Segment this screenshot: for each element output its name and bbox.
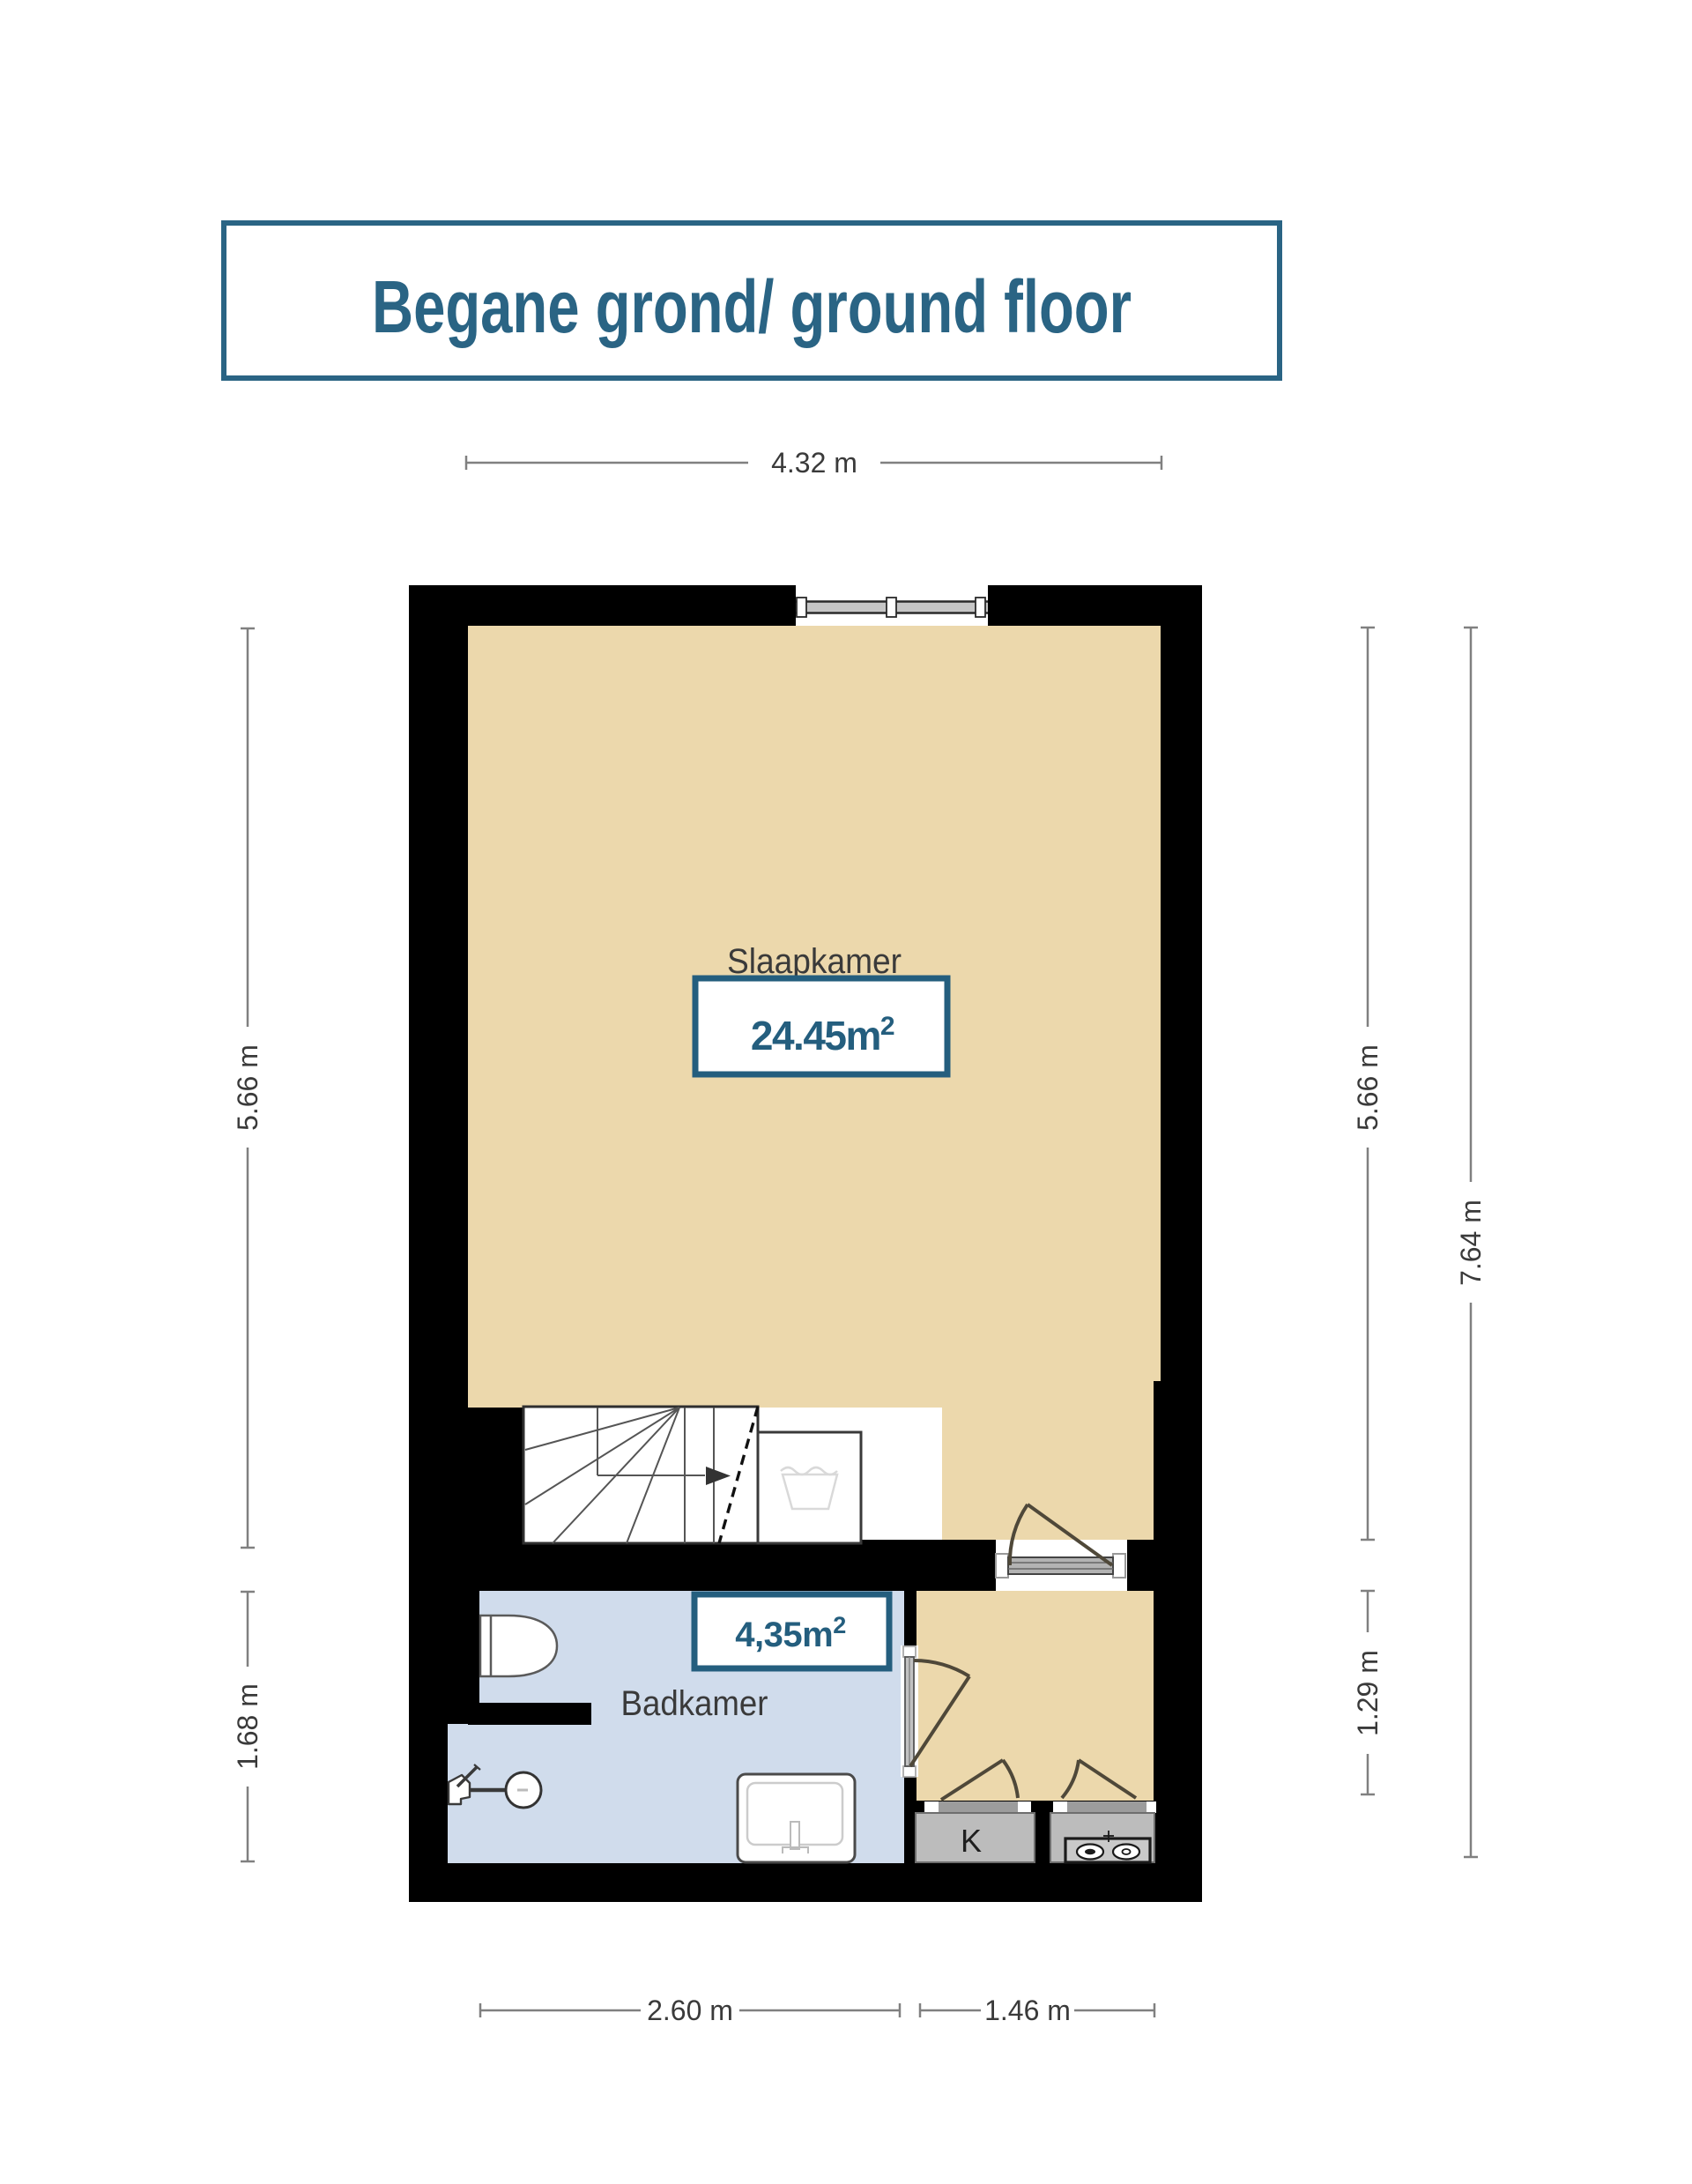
- svg-text:Badkamer: Badkamer: [621, 1684, 768, 1723]
- svg-text:4,35m2: 4,35m2: [735, 1612, 845, 1654]
- svg-text:K: K: [961, 1823, 982, 1859]
- svg-text:5.66 m: 5.66 m: [1352, 1044, 1384, 1131]
- svg-text:4.32 m: 4.32 m: [771, 447, 857, 479]
- svg-text:Slaapkamer: Slaapkamer: [727, 942, 902, 981]
- svg-text:1.46 m: 1.46 m: [984, 1995, 1071, 2026]
- svg-text:2.60 m: 2.60 m: [647, 1995, 733, 2026]
- svg-text:7.64 m: 7.64 m: [1455, 1200, 1487, 1286]
- svg-text:24.45m2: 24.45m2: [751, 1012, 894, 1059]
- svg-text:1.68 m: 1.68 m: [232, 1683, 263, 1770]
- svg-text:Begane grond/ ground floor: Begane grond/ ground floor: [372, 265, 1132, 348]
- svg-text:5.66 m: 5.66 m: [232, 1044, 263, 1131]
- svg-text:1.29 m: 1.29 m: [1352, 1650, 1384, 1736]
